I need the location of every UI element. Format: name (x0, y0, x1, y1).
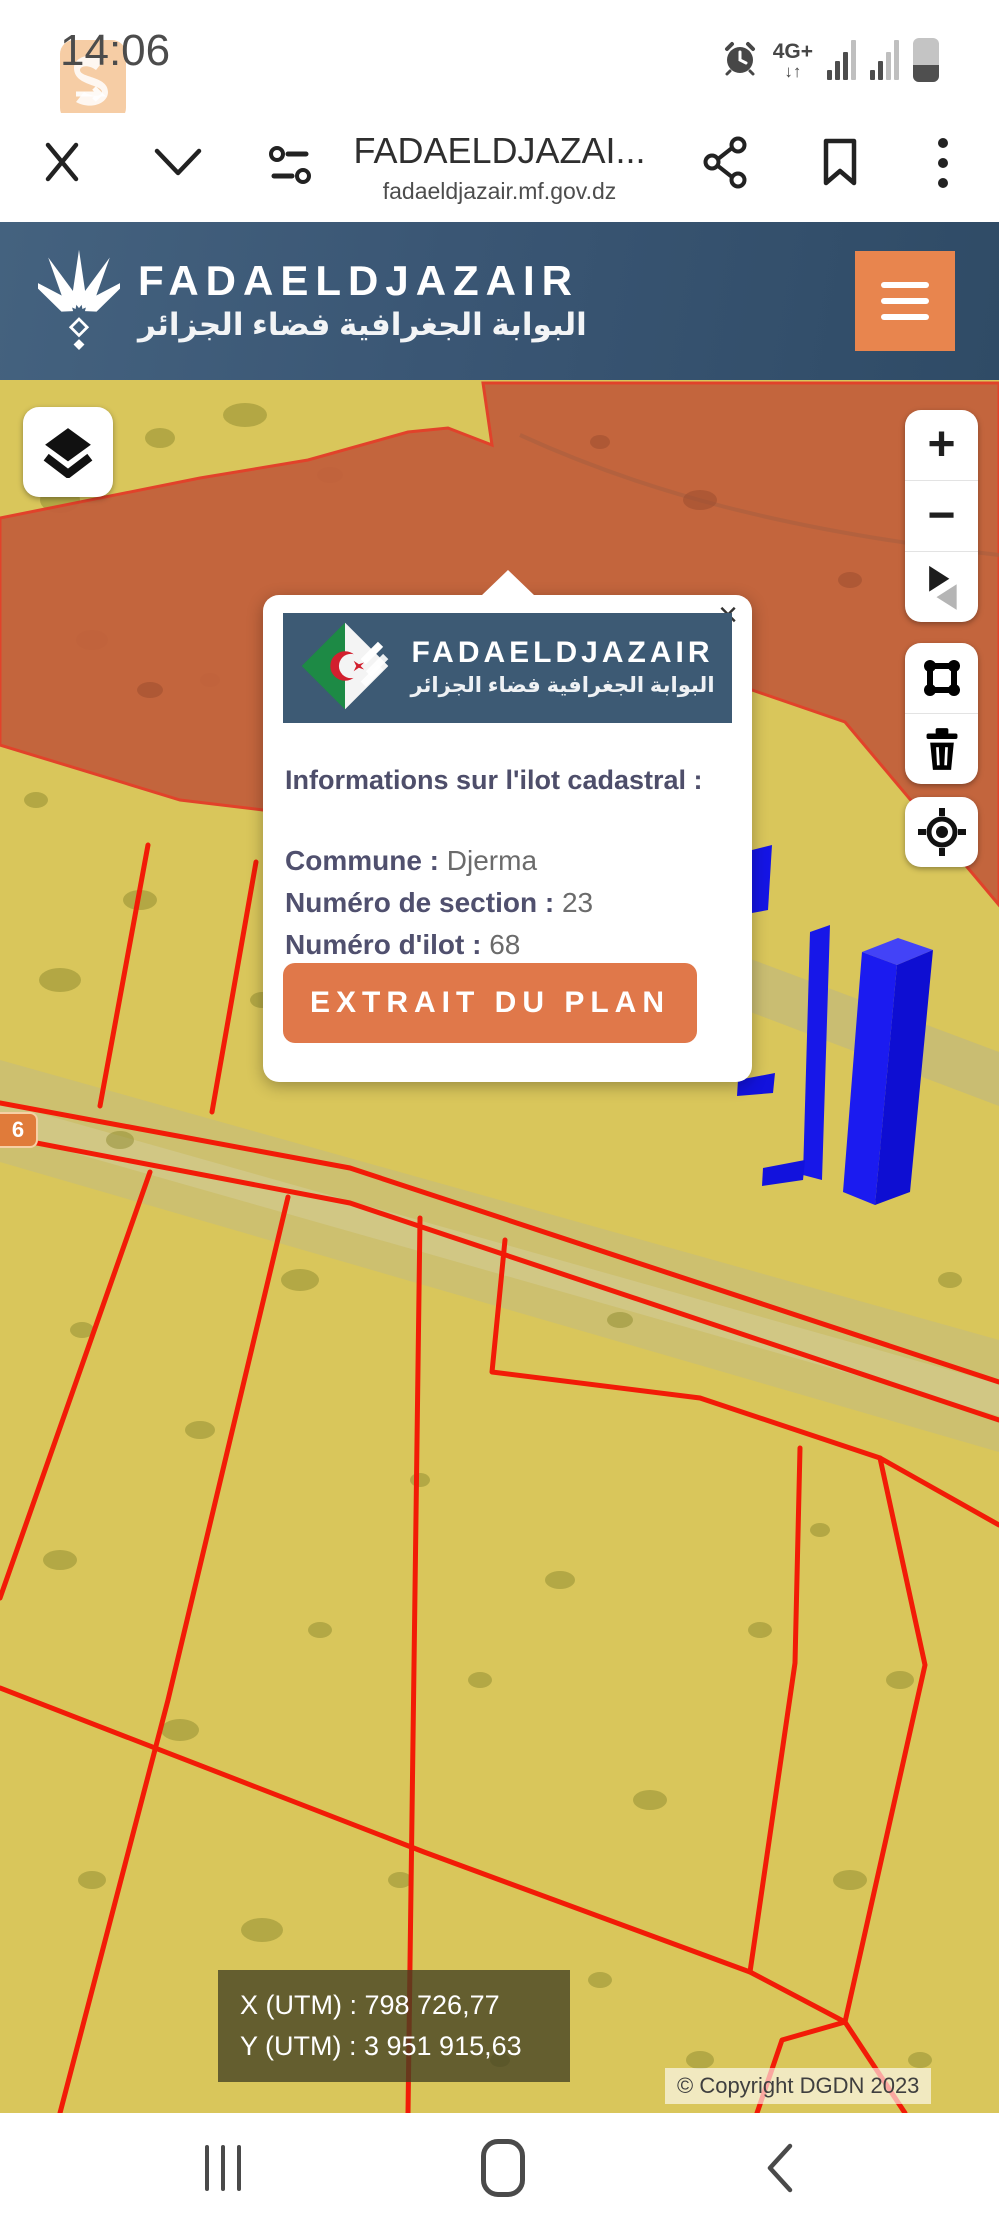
map-canvas[interactable]: 6 + − (0, 380, 999, 2113)
clock-time: 14:06 (60, 26, 170, 76)
status-bar: 14:06 Swiga | سويقة 4G+ ↓↑ (0, 0, 999, 113)
fadaeldjazair-fan-logo (38, 238, 120, 365)
draw-control-group (905, 643, 978, 784)
menu-hamburger-button[interactable] (855, 251, 955, 351)
home-button[interactable] (481, 2139, 525, 2197)
back-button[interactable] (764, 2142, 794, 2194)
delete-drawing-button[interactable] (905, 713, 978, 784)
section-number-row: Numéro de section : 23 (285, 887, 593, 919)
zoom-in-button[interactable]: + (905, 410, 978, 480)
browser-page-title: FADAELDJAZAI... (353, 130, 645, 172)
zoom-control-group: + − (905, 410, 978, 622)
polygon-extent-icon (920, 656, 964, 700)
popup-heading: Informations sur l'ilot cadastral : (285, 765, 703, 796)
extent-history-button[interactable] (905, 551, 978, 622)
history-arrows-icon (920, 564, 964, 610)
ilot-number-row: Numéro d'ilot : 68 (285, 929, 520, 961)
extrait-du-plan-button[interactable]: EXTRAIT DU PLAN (283, 963, 697, 1043)
trash-icon (922, 727, 962, 771)
locate-control-group (905, 797, 978, 867)
utm-coordinates-box: X (UTM) : 798 726,77 Y (UTM) : 3 951 915… (218, 1970, 570, 2082)
browser-toolbar: FADAELDJAZAI... fadaeldjazair.mf.gov.dz (0, 113, 999, 222)
popup-banner-title: FADAELDJAZAIR (403, 638, 722, 668)
network-4g-icon: 4G+ ↓↑ (773, 41, 813, 80)
battery-icon (913, 38, 939, 82)
popup-brand-banner: FADAELDJAZAIR البوابة الجغرافية فضاء الج… (283, 613, 732, 723)
back-chevron-icon (764, 2142, 794, 2194)
utm-x-value: X (UTM) : 798 726,77 (240, 1990, 570, 2021)
algeria-flag-logo (293, 614, 397, 723)
map-copyright: © Copyright DGDN 2023 (665, 2068, 931, 2104)
zoom-out-button[interactable]: − (905, 480, 978, 551)
commune-row: Commune : Djerma (285, 845, 537, 877)
signal-bars-icon-1 (827, 40, 856, 80)
layers-button[interactable] (23, 407, 113, 497)
home-icon (481, 2139, 525, 2197)
cadastral-info-popup: × (263, 595, 752, 1082)
share-icon[interactable] (700, 135, 752, 196)
android-nav-bar (0, 2113, 999, 2222)
site-brand-subtitle-arabic: البوابة الجغرافية فضاء الجزائر (138, 307, 587, 343)
layers-icon (42, 426, 94, 478)
browser-url: fadaeldjazair.mf.gov.dz (383, 178, 617, 205)
signal-bars-icon-2 (870, 40, 899, 80)
popup-banner-subtitle-arabic: البوابة الجغرافية فضاء الجزائر (403, 673, 722, 698)
alarm-icon (721, 39, 759, 82)
site-header: FADAELDJAZAIR البوابة الجغرافية فضاء الج… (0, 222, 999, 380)
gps-target-icon (918, 808, 966, 856)
draw-polygon-button[interactable] (905, 643, 978, 713)
bookmark-icon[interactable] (818, 135, 862, 196)
menu-kebab-icon[interactable] (936, 135, 950, 196)
popup-pointer-arrow (481, 570, 535, 596)
route-shield-badge: 6 (0, 1112, 38, 1148)
recents-button[interactable] (205, 2145, 241, 2191)
site-brand-title: FADAELDJAZAIR (138, 259, 587, 303)
locate-me-button[interactable] (905, 797, 978, 867)
utm-y-value: Y (UTM) : 3 951 915,63 (240, 2031, 570, 2062)
